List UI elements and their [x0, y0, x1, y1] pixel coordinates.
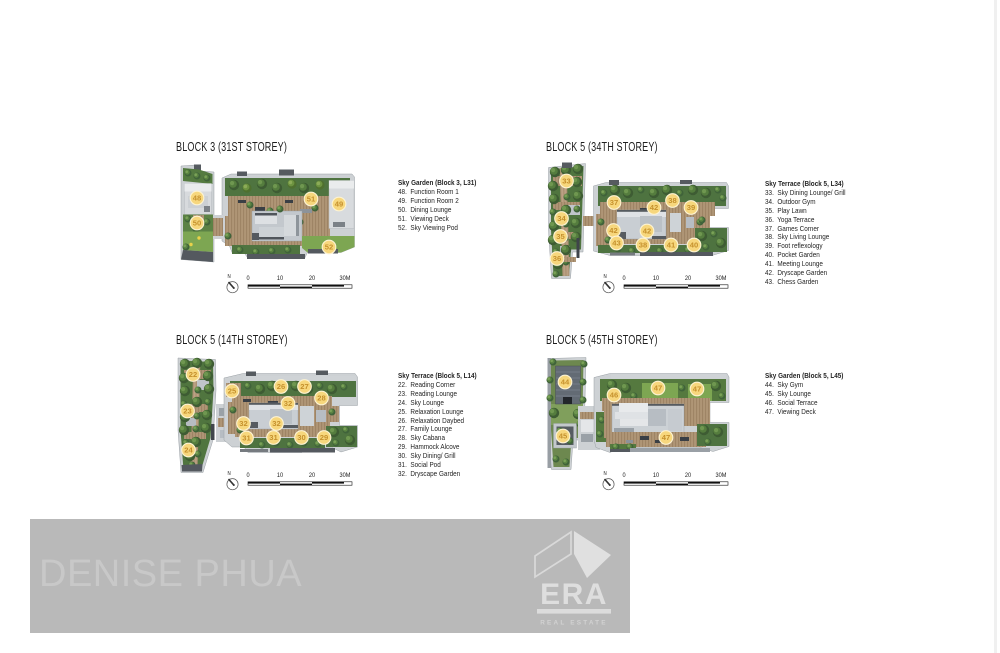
svg-text:37: 37 [610, 198, 618, 207]
svg-text:28: 28 [317, 394, 325, 403]
svg-text:ERA: ERA [540, 578, 608, 611]
svg-text:47: 47 [693, 385, 701, 394]
svg-text:47: 47 [662, 433, 670, 442]
svg-text:45: 45 [559, 432, 568, 441]
svg-text:36: 36 [553, 254, 561, 263]
svg-text:32: 32 [284, 399, 292, 408]
svg-text:30M: 30M [716, 275, 727, 283]
svg-text:41: 41 [667, 241, 676, 250]
svg-text:42: 42 [650, 203, 658, 212]
svg-text:30M: 30M [716, 472, 727, 480]
svg-text:44: 44 [561, 378, 570, 387]
svg-text:32: 32 [272, 419, 280, 428]
svg-text:49: 49 [335, 200, 343, 209]
svg-text:33: 33 [562, 177, 570, 186]
svg-text:0: 0 [246, 275, 250, 283]
svg-text:31: 31 [269, 433, 278, 442]
svg-text:30M: 30M [340, 275, 351, 283]
svg-text:10: 10 [653, 275, 660, 283]
svg-text:N: N [603, 274, 607, 280]
svg-text:0: 0 [246, 472, 250, 480]
svg-text:52: 52 [325, 243, 333, 252]
svg-text:20: 20 [685, 275, 692, 283]
svg-text:31: 31 [242, 434, 251, 443]
svg-text:N: N [227, 274, 231, 280]
svg-text:25: 25 [228, 387, 237, 396]
svg-text:51: 51 [307, 195, 316, 204]
svg-text:35: 35 [556, 232, 565, 241]
svg-text:40: 40 [690, 241, 698, 250]
svg-text:29: 29 [320, 433, 328, 442]
svg-text:47: 47 [654, 384, 662, 393]
svg-text:32: 32 [239, 419, 247, 428]
svg-text:50: 50 [193, 219, 201, 228]
svg-text:34: 34 [557, 214, 566, 223]
svg-text:26: 26 [277, 382, 285, 391]
svg-text:46: 46 [610, 391, 618, 400]
svg-text:N: N [603, 471, 607, 477]
svg-text:0: 0 [622, 472, 626, 480]
svg-text:23: 23 [183, 407, 191, 416]
svg-text:20: 20 [685, 472, 692, 480]
svg-text:10: 10 [277, 472, 284, 480]
svg-text:30: 30 [297, 433, 305, 442]
svg-text:N: N [227, 471, 231, 477]
svg-text:42: 42 [643, 227, 651, 236]
svg-text:48: 48 [193, 194, 201, 203]
svg-text:22: 22 [189, 370, 197, 379]
svg-text:24: 24 [184, 446, 193, 455]
svg-text:42: 42 [609, 226, 617, 235]
svg-text:20: 20 [309, 275, 316, 283]
svg-text:10: 10 [277, 275, 284, 283]
svg-text:0: 0 [622, 275, 626, 283]
svg-text:38: 38 [639, 241, 647, 250]
svg-text:27: 27 [300, 382, 308, 391]
svg-text:20: 20 [309, 472, 316, 480]
svg-text:10: 10 [653, 472, 660, 480]
svg-text:39: 39 [687, 203, 695, 212]
svg-text:43: 43 [612, 239, 620, 248]
svg-text:38: 38 [668, 196, 676, 205]
svg-text:30M: 30M [340, 472, 351, 480]
svg-text:REAL ESTATE: REAL ESTATE [540, 620, 608, 627]
